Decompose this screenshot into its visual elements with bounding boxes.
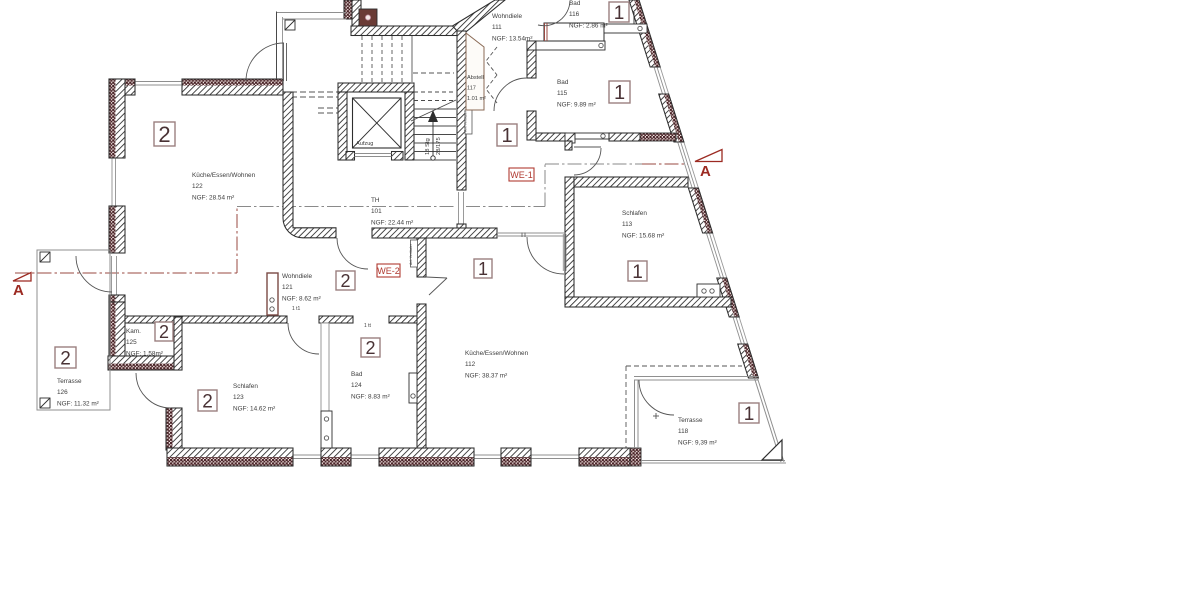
svg-text:2: 2 (60, 348, 71, 369)
svg-text:1: 1 (744, 404, 755, 425)
svg-text:1: 1 (478, 259, 488, 279)
svg-text:A: A (700, 163, 711, 180)
svg-text:2: 2 (365, 338, 375, 358)
svg-text:1: 1 (614, 82, 625, 104)
svg-text:2: 2 (159, 322, 169, 342)
svg-text:WE-1: WE-1 (510, 170, 533, 180)
svg-text:2: 2 (158, 122, 170, 147)
svg-text:2: 2 (202, 391, 213, 412)
svg-text:Anl. Vertikaler: Anl. Vertikaler (464, 110, 468, 132)
svg-text:1 t1: 1 t1 (292, 306, 301, 312)
svg-text:1: 1 (614, 3, 625, 24)
svg-text:2: 2 (340, 271, 350, 291)
svg-text:18 Stg: 18 Stg (425, 138, 431, 155)
svg-text:1: 1 (632, 262, 643, 283)
svg-text:28/175: 28/175 (436, 137, 442, 155)
svg-text:A: A (13, 282, 24, 299)
svg-text:1: 1 (501, 125, 512, 147)
svg-text:1 tt: 1 tt (364, 323, 372, 329)
svg-text:Aufzug: Aufzug (356, 141, 373, 147)
svg-text:Anl. Vertikaler: Anl. Vertikaler (409, 243, 413, 265)
svg-text:WE-2: WE-2 (377, 266, 400, 276)
